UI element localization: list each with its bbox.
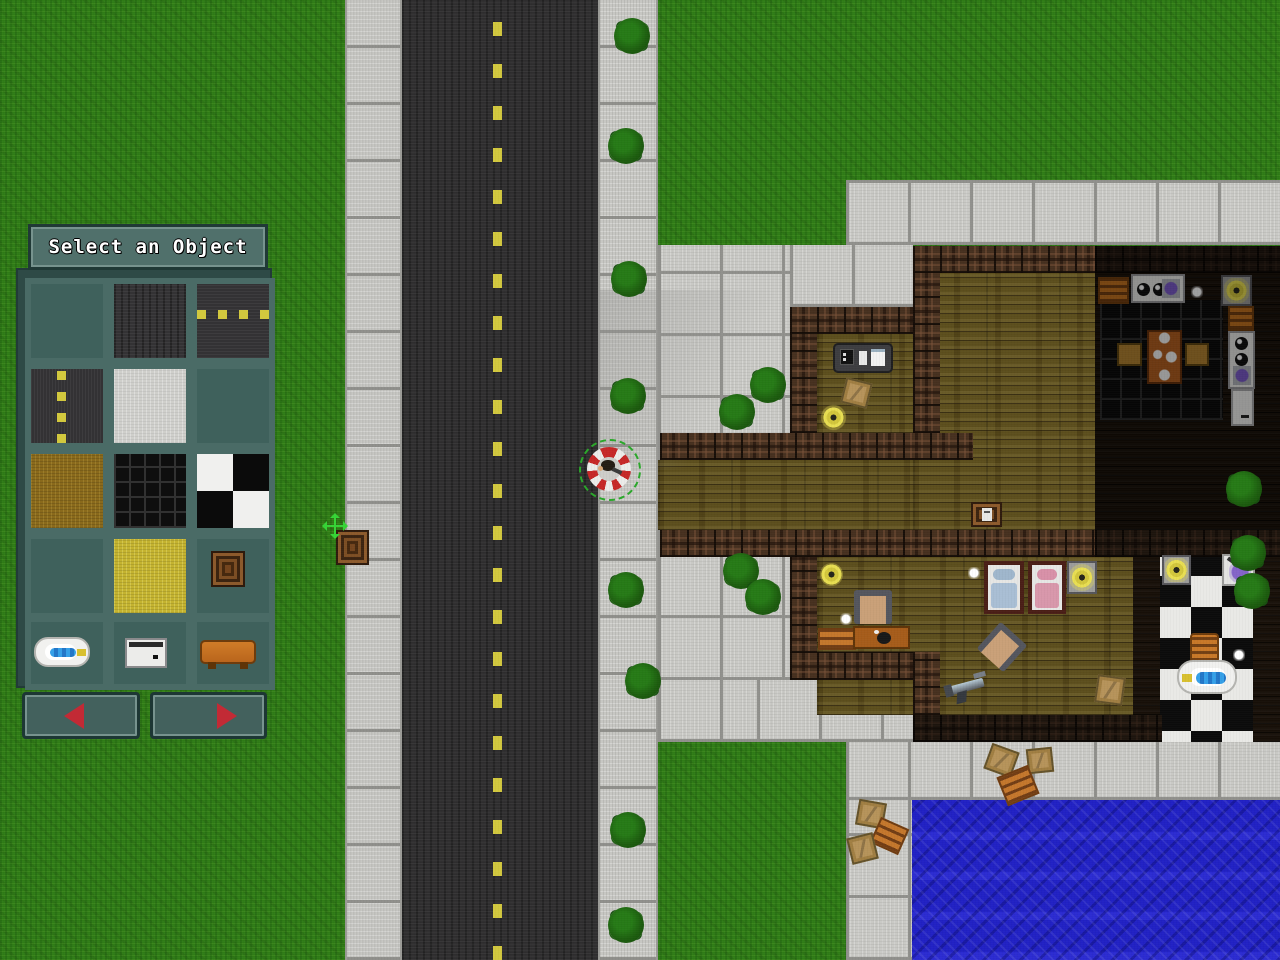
lamp[interactable] — [820, 404, 847, 431]
brick-wall — [660, 433, 973, 460]
selection-ring — [587, 447, 631, 491]
brick-wall — [913, 246, 1095, 273]
tree[interactable] — [745, 579, 781, 615]
crate-labeled[interactable] — [971, 502, 1002, 527]
water-region — [912, 800, 1280, 960]
right-arrow-icon — [217, 703, 237, 729]
white-dot — [840, 613, 852, 625]
palette-tile-concrete[interactable] — [108, 363, 192, 449]
editor-stage: Select an Object — [0, 0, 1280, 960]
lamp-plate[interactable] — [1221, 275, 1252, 306]
palette-tile-asphalt[interactable] — [108, 278, 192, 364]
chair[interactable] — [854, 590, 892, 624]
tree[interactable] — [719, 394, 755, 430]
palette-tile-sand[interactable] — [108, 533, 192, 619]
stove-side[interactable] — [1228, 331, 1255, 389]
tree[interactable] — [610, 378, 646, 414]
move-cursor-icon — [321, 512, 349, 540]
kitchen-table[interactable] — [1147, 330, 1182, 384]
palette-tile-bathtub[interactable] — [25, 616, 109, 690]
tree[interactable] — [608, 128, 644, 164]
fridge[interactable] — [1231, 389, 1254, 426]
left-arrow-icon — [64, 703, 84, 729]
white-dot — [1233, 649, 1245, 661]
lamp[interactable] — [820, 563, 843, 586]
white-dot — [1191, 286, 1203, 298]
concrete-region — [658, 245, 790, 460]
stove-top[interactable] — [1131, 274, 1185, 303]
palette-tile-water[interactable] — [25, 533, 109, 619]
palette-title: Select an Object — [48, 236, 247, 258]
brick-wall — [660, 530, 1095, 557]
white-dot — [968, 567, 980, 579]
desk[interactable] — [853, 626, 910, 649]
wood-region — [658, 460, 913, 530]
concrete-region — [846, 742, 1280, 800]
palette-tile-grass[interactable] — [25, 278, 109, 364]
kchair[interactable] — [1185, 343, 1209, 366]
shelf[interactable] — [1098, 277, 1129, 304]
brick-wall — [913, 715, 1162, 742]
brick-wall — [913, 273, 940, 433]
palette-tile-dark-tile[interactable] — [108, 448, 192, 534]
palette-tile-bench[interactable] — [191, 616, 275, 690]
tree[interactable] — [611, 261, 647, 297]
basket[interactable] — [1190, 633, 1219, 663]
palette-tile-wood-planks[interactable] — [191, 363, 275, 449]
bed-pink[interactable] — [1028, 561, 1066, 614]
palette-tile-road-vertical[interactable] — [25, 363, 109, 449]
shelf[interactable] — [1228, 306, 1254, 331]
tree[interactable] — [608, 907, 644, 943]
kchair[interactable] — [1117, 343, 1142, 366]
tree[interactable] — [625, 663, 661, 699]
tree[interactable] — [750, 367, 786, 403]
pallet[interactable] — [818, 628, 856, 650]
lamp-plate[interactable] — [1067, 561, 1097, 594]
next-page-button[interactable] — [150, 692, 267, 739]
palette-tile-crate[interactable] — [191, 533, 275, 619]
bathtub[interactable] — [1177, 660, 1237, 694]
lamp-plate[interactable] — [1162, 555, 1191, 585]
tree[interactable] — [614, 18, 650, 54]
tv-unit[interactable] — [833, 343, 893, 373]
palette-title-bar: Select an Object — [28, 224, 268, 270]
tree[interactable] — [1234, 573, 1270, 609]
tree[interactable] — [1226, 471, 1262, 507]
tree[interactable] — [1230, 535, 1266, 571]
concrete-region — [846, 180, 1280, 245]
palette-tile-road-horizontal[interactable] — [191, 278, 275, 364]
brick-wall — [1095, 246, 1280, 273]
palette-tile-stove[interactable] — [108, 616, 192, 690]
sidewalk-region — [345, 0, 402, 960]
crate-tan[interactable] — [1094, 674, 1126, 706]
tree[interactable] — [610, 812, 646, 848]
prev-page-button[interactable] — [22, 692, 140, 739]
palette-tile-dirt[interactable] — [25, 448, 109, 534]
bed-blue[interactable] — [984, 561, 1024, 614]
player-character[interactable] — [597, 457, 621, 481]
road-line-region — [493, 0, 502, 960]
brick-wall — [790, 307, 913, 334]
concrete-region — [790, 245, 913, 307]
palette-tile-checker-tile[interactable] — [191, 448, 275, 534]
tree[interactable] — [608, 572, 644, 608]
